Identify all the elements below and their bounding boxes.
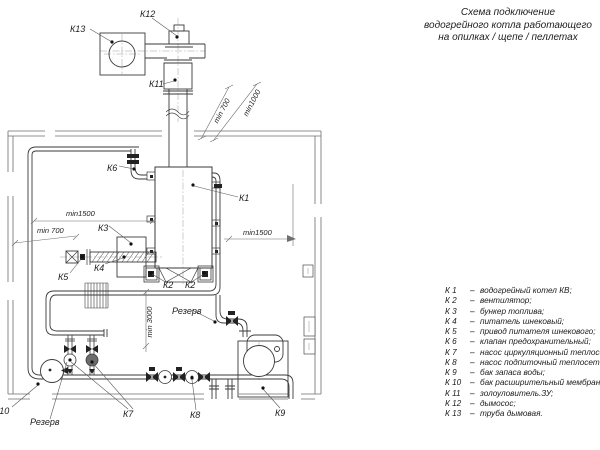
fuel-feed-system <box>66 237 156 308</box>
legend-dash: – <box>470 337 480 347</box>
legend-dash: – <box>470 327 480 337</box>
legend-dash: – <box>470 378 480 388</box>
legend-dash: – <box>470 348 480 358</box>
boiler-k1 <box>147 167 220 282</box>
legend-name: водогрейный котел КВ; <box>480 286 572 296</box>
label-k9: К9 <box>275 408 285 418</box>
legend-item: К 3–бункер топлива; <box>445 307 600 317</box>
centerlines <box>60 18 259 380</box>
legend-name: привод питателя шнекового; <box>480 327 595 337</box>
legend-name: бак запаса воды; <box>480 368 545 378</box>
legend-name: питатель шнековый; <box>480 317 564 327</box>
legend-item: К 8–насос подпиточный теплосети; <box>445 358 600 368</box>
wall-box <box>304 317 315 336</box>
label-k8: К8 <box>190 410 200 420</box>
label-k12: К12 <box>140 9 155 19</box>
dim-top-min700: min 700 <box>212 96 233 125</box>
legend-code: К 1 <box>445 286 470 296</box>
legend-item: К 1–водогрейный котел КВ; <box>445 286 600 296</box>
drawing-title: Схема подключение водогрейного котла раб… <box>408 7 600 45</box>
legend-name: клапан предохранительный; <box>480 337 591 347</box>
legend-code: К 3 <box>445 307 470 317</box>
legend-dash: – <box>470 307 480 317</box>
legend-dash: – <box>470 286 480 296</box>
leader-lines <box>12 18 280 419</box>
legend-dash: – <box>470 358 480 368</box>
label-k11: К11 <box>149 79 164 89</box>
legend: К 1–водогрейный котел КВ; К 2–вентилятор… <box>445 286 600 419</box>
label-k2-left: К2 <box>163 280 173 290</box>
legend-name: дымосос; <box>480 399 516 409</box>
legend-item: К 10–бак расширительный мембранный; <box>445 378 600 388</box>
legend-dash: – <box>470 317 480 327</box>
dimension-lines <box>12 82 296 352</box>
legend-code: К 8 <box>445 358 470 368</box>
dim-bottom-min3000: min 3000 <box>145 306 154 338</box>
label-k13: К13 <box>70 24 85 34</box>
legend-dash: – <box>470 368 480 378</box>
legend-code: К 13 <box>445 409 470 419</box>
legend-code: К 11 <box>445 389 470 399</box>
label-k3: К3 <box>98 223 108 233</box>
legend-item: К 6–клапан предохранительный; <box>445 337 600 347</box>
dim-right-min1500: min1500 <box>243 228 273 237</box>
circulation-pumps-k7 <box>64 335 98 375</box>
dim-left-min1500: min1500 <box>66 209 96 218</box>
label-k4: К4 <box>94 263 104 273</box>
legend-name: труба дымовая. <box>480 409 543 419</box>
legend-name: золоуловитель.ЗУ; <box>480 389 553 399</box>
legend-code: К 7 <box>445 348 470 358</box>
pump-duty <box>86 354 98 366</box>
title-line-1: Схема подключение <box>408 7 600 20</box>
safety-valve-k6 <box>127 149 147 179</box>
label-reserve-pump: Резерв <box>30 417 60 427</box>
legend-item: К 5–привод питателя шнекового; <box>445 327 600 337</box>
ladder <box>85 283 108 308</box>
dim-left-min700: min 700 <box>37 226 65 235</box>
legend-item: К 12–дымосос; <box>445 399 600 409</box>
label-k1: К1 <box>239 193 249 203</box>
legend-code: К 2 <box>445 296 470 306</box>
label-k6: К6 <box>107 163 117 173</box>
label-k10: К10 <box>0 406 9 416</box>
flue-downcomer <box>163 89 193 167</box>
title-line-2: водогрейного котла работающего <box>408 20 600 33</box>
legend-item: К 2–вентилятор; <box>445 296 600 306</box>
legend-item: К 11–золоуловитель.ЗУ; <box>445 389 600 399</box>
legend-item: К 4–питатель шнековый; <box>445 317 600 327</box>
network-pipes <box>209 379 235 399</box>
legend-name: бак расширительный мембранный; <box>480 378 600 388</box>
drawing-canvas: min1500 min 700 min1500 min 700 min1000 … <box>0 0 600 450</box>
label-k7: К7 <box>123 409 134 419</box>
legend-item: К 9–бак запаса воды; <box>445 368 600 378</box>
legend-code: К 4 <box>445 317 470 327</box>
legend-code: К 12 <box>445 399 470 409</box>
legend-item: К 13–труба дымовая. <box>445 409 600 419</box>
title-line-3: на опилках / щепе / пеллетах <box>408 32 600 45</box>
legend-dash: – <box>470 296 480 306</box>
legend-dash: – <box>470 399 480 409</box>
legend-code: К 6 <box>445 337 470 347</box>
legend-name: вентилятор; <box>480 296 532 306</box>
chimney-assembly <box>100 25 205 167</box>
fill-line <box>216 295 251 337</box>
legend-code: К 10 <box>445 378 470 388</box>
smoke-exhauster-k12 <box>165 25 193 47</box>
label-k5: К5 <box>58 272 69 282</box>
legend-name: насос подпиточный теплосети; <box>480 358 600 368</box>
label-k2-right: К2 <box>185 280 195 290</box>
legend-code: К 9 <box>445 368 470 378</box>
legend-name: бункер топлива; <box>480 307 544 317</box>
legend-dash: – <box>470 409 480 419</box>
wall-box <box>304 339 315 354</box>
wall-mounted-boxes <box>303 265 315 354</box>
legend-item: К 7–насос циркуляционный теплосети; <box>445 348 600 358</box>
legend-name: насос циркуляционный теплосети; <box>480 348 600 358</box>
dim-top-min1000: min1000 <box>241 87 263 117</box>
legend-dash: – <box>470 389 480 399</box>
label-reserve-line: Резерв <box>172 306 202 316</box>
legend-code: К 5 <box>445 327 470 337</box>
